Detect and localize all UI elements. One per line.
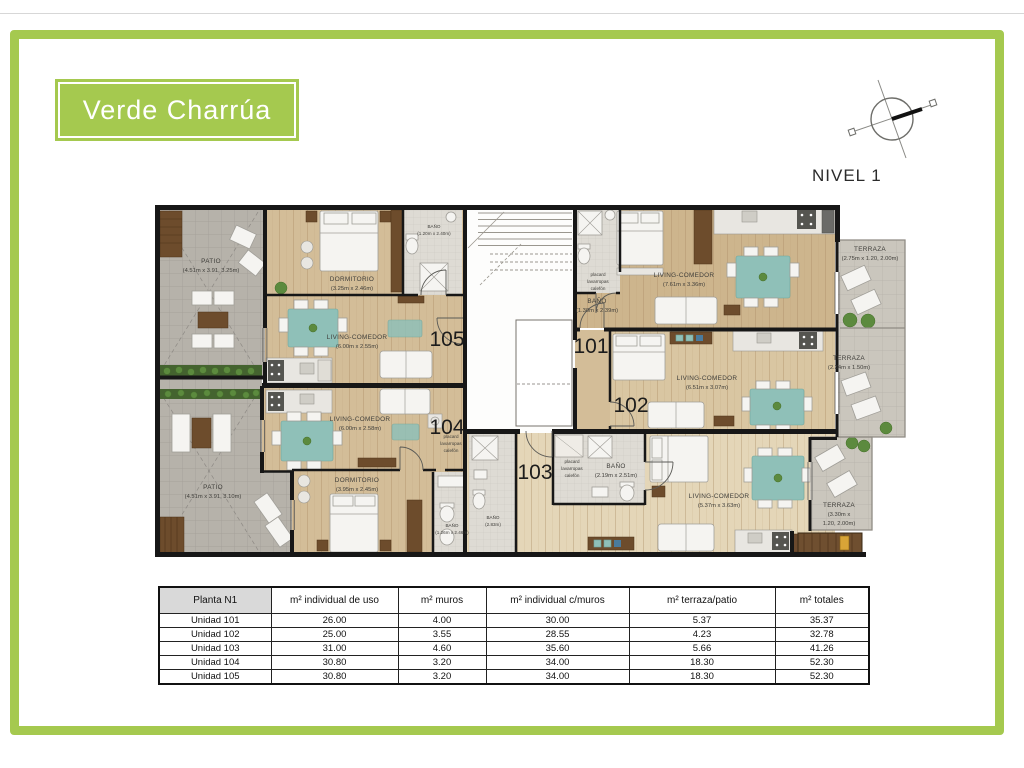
- label-bano105-name: BAÑO: [427, 223, 440, 229]
- label-dorm105-name: DORMITORIO: [330, 276, 374, 283]
- wardrobe-104: [407, 500, 422, 552]
- label-terraza103-dims2: 1.20, 2.00m): [823, 521, 856, 527]
- cell-value: 3.55: [398, 628, 486, 642]
- cell-value: 3.20: [398, 656, 486, 670]
- cell-value: 4.00: [398, 614, 486, 628]
- label-bano103-dims: (2.19m x 2.51m): [595, 473, 637, 479]
- compass-icon: [848, 80, 937, 158]
- cell-value: 18.30: [629, 670, 775, 685]
- unit-number-105: 105: [429, 328, 464, 351]
- label-placard101-1: placard: [590, 272, 606, 277]
- unit-number-101: 101: [573, 335, 608, 358]
- cell-value: 5.66: [629, 642, 775, 656]
- label-placard104-1: placard: [443, 434, 459, 439]
- label-living102-dims: (6.51m x 3.07m): [686, 385, 728, 391]
- label-placard104-2: lavarropas: [440, 441, 462, 446]
- area-table: Planta N1 m² individual de uso m² muros …: [158, 586, 870, 685]
- label-terraza101-name: TERRAZA: [854, 246, 886, 253]
- cell-value: 26.00: [271, 614, 398, 628]
- cell-value: 30.80: [271, 670, 398, 685]
- logo-text: Verde Charrúa: [83, 95, 272, 126]
- label-dorm105-dims: (3.25m x 2.46m): [331, 286, 373, 292]
- label-patio104-dims: (4.51m x 3.91, 3.10m): [185, 494, 242, 500]
- label-bano104-dims: (1.26m x 2.46m): [435, 530, 469, 535]
- cell-value: 52.30: [775, 670, 869, 685]
- cell-value: 28.55: [486, 628, 629, 642]
- label-patio105-dims: (4.51m x 3.91, 3.25m): [183, 268, 240, 274]
- col-header-muros: m² muros: [398, 587, 486, 614]
- cell-value: 3.20: [398, 670, 486, 685]
- cell-value: 35.37: [775, 614, 869, 628]
- label-bano103b-dims: (2.83m): [485, 522, 501, 527]
- label-dorm104-dims: (3.95m x 2.45m): [336, 487, 378, 493]
- label-terraza102-name: TERRAZA: [833, 355, 865, 362]
- unit-number-102: 102: [613, 394, 648, 417]
- label-living103-dims: (5.37m x 3.63m): [698, 503, 740, 509]
- cell-value: 52.30: [775, 656, 869, 670]
- label-placard104-3: calefón: [444, 448, 459, 453]
- label-patio104-name: PATIO: [203, 484, 223, 491]
- rug-105: [388, 320, 422, 337]
- label-living105-dims: (6.00m x 2.55m): [336, 344, 378, 350]
- col-header-cmuros: m² individual c/muros: [486, 587, 629, 614]
- table-row-unidad-103: Unidad 103 31.00 4.60 35.60 5.66 41.26: [159, 642, 869, 656]
- table-row-unidad-101: Unidad 101 26.00 4.00 30.00 5.37 35.37: [159, 614, 869, 628]
- table-row-unidad-105: Unidad 105 30.80 3.20 34.00 18.30 52.30: [159, 670, 869, 685]
- cell-value: 25.00: [271, 628, 398, 642]
- label-bano105-dims: (1.20m x 2.40m): [417, 231, 451, 236]
- label-living105-name: LIVING-COMEDOR: [327, 334, 388, 341]
- cell-unit: Unidad 104: [159, 656, 271, 670]
- label-dorm104-name: DORMITORIO: [335, 477, 379, 484]
- label-bano101-name: BAÑO: [587, 296, 606, 305]
- cell-value: 41.26: [775, 642, 869, 656]
- label-placard103-1: placard: [564, 459, 580, 464]
- label-bano101-dims: (1.30m x 2.39m): [576, 308, 618, 314]
- cell-unit: Unidad 103: [159, 642, 271, 656]
- label-terraza102-dims: (2.34m x 1.50m): [828, 365, 870, 371]
- logo-box: Verde Charrúa: [55, 79, 299, 141]
- label-living102-name: LIVING-COMEDOR: [677, 375, 738, 382]
- cell-value: 30.80: [271, 656, 398, 670]
- col-header-uso: m² individual de uso: [271, 587, 398, 614]
- table-header-row: Planta N1 m² individual de uso m² muros …: [159, 587, 869, 614]
- page: Verde Charrúa NIVEL 1: [0, 0, 1024, 768]
- level-label: NIVEL 1: [812, 166, 882, 186]
- wardrobe-101: [694, 210, 712, 264]
- cell-value: 5.37: [629, 614, 775, 628]
- label-bano103-name: BAÑO: [606, 461, 625, 470]
- table-row-unidad-102: Unidad 102 25.00 3.55 28.55 4.23 32.78: [159, 628, 869, 642]
- cell-value: 4.23: [629, 628, 775, 642]
- unit-number-103: 103: [517, 461, 552, 484]
- col-header-terraza: m² terraza/patio: [629, 587, 775, 614]
- cell-value: 32.78: [775, 628, 869, 642]
- label-bano103b-name: BAÑO: [486, 514, 499, 520]
- wardrobe-105: [391, 210, 403, 292]
- plant-105: [275, 282, 287, 294]
- cell-value: 34.00: [486, 670, 629, 685]
- kitchen-101: [714, 208, 835, 234]
- label-terraza103-name: TERRAZA: [823, 502, 855, 509]
- parrillero: [798, 533, 862, 553]
- cell-unit: Unidad 101: [159, 614, 271, 628]
- label-terraza101-dims: (2.75m x 1.20, 2.00m): [842, 256, 899, 262]
- label-living101-name: LIVING-COMEDOR: [654, 272, 715, 279]
- col-header-planta: Planta N1: [159, 587, 271, 614]
- cell-value: 34.00: [486, 656, 629, 670]
- logo-inner-border: Verde Charrúa: [58, 82, 296, 138]
- label-placard103-2: lavarropas: [561, 466, 583, 471]
- cell-value: 31.00: [271, 642, 398, 656]
- label-terraza103-dims1: (3.30m x: [828, 512, 851, 518]
- label-patio105-name: PATIO: [201, 258, 221, 265]
- label-living104-name: LIVING-COMEDOR: [330, 416, 391, 423]
- label-living101-dims: (7.61m x 3.36m): [663, 282, 705, 288]
- rug-104: [392, 424, 419, 440]
- label-bano104-name: BAÑO: [445, 522, 458, 528]
- label-living104-dims: (6.00m x 2.58m): [339, 426, 381, 432]
- label-placard101-2: lavarropas: [587, 279, 609, 284]
- cell-unit: Unidad 105: [159, 670, 271, 685]
- col-header-totales: m² totales: [775, 587, 869, 614]
- label-placard103-3: calefón: [565, 473, 580, 478]
- cell-unit: Unidad 102: [159, 628, 271, 642]
- cell-value: 4.60: [398, 642, 486, 656]
- table-row-unidad-104: Unidad 104 30.80 3.20 34.00 18.30 52.30: [159, 656, 869, 670]
- cell-value: 18.30: [629, 656, 775, 670]
- cell-value: 35.60: [486, 642, 629, 656]
- label-living103-name: LIVING-COMEDOR: [689, 493, 750, 500]
- cell-value: 30.00: [486, 614, 629, 628]
- label-placard101-3: calefón: [591, 286, 606, 291]
- elevator-void: [516, 320, 572, 426]
